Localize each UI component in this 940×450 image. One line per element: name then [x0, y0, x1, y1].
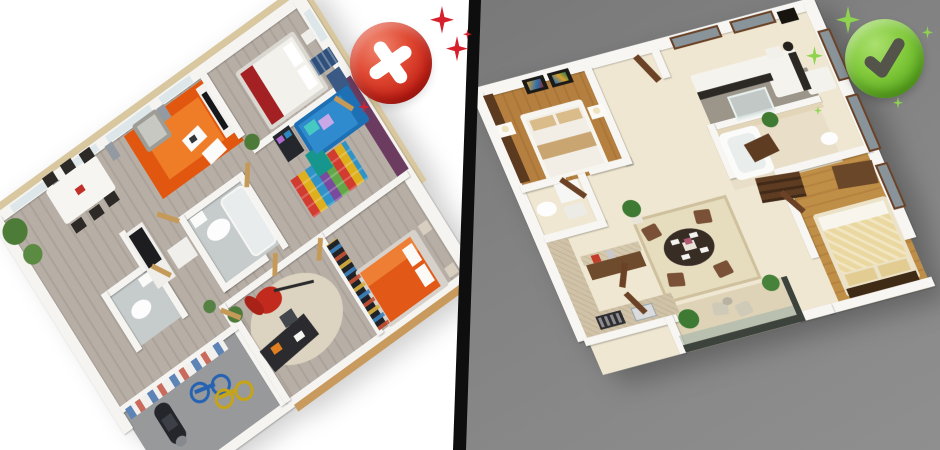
right-floorplan — [483, 8, 931, 375]
comparison-image — [0, 0, 940, 450]
dining-chair — [667, 272, 686, 286]
left-floorplan — [2, 1, 470, 450]
dining-chair — [693, 209, 713, 224]
door-bath — [272, 253, 277, 276]
